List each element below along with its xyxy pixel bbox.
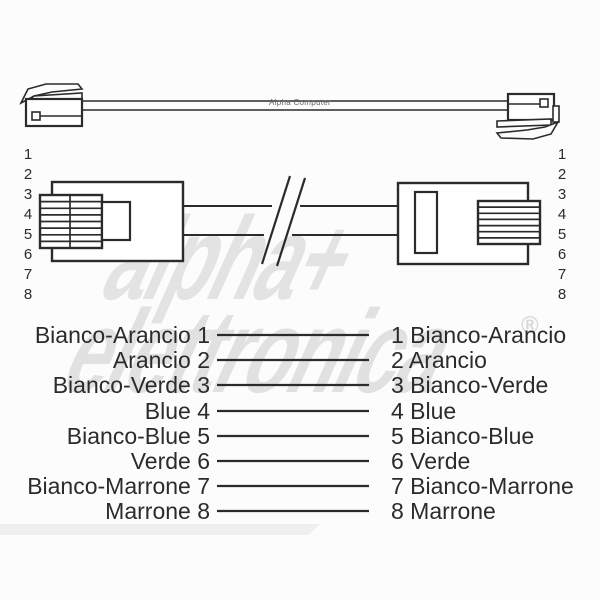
- wire-label-left-8: Marrone 8: [0, 499, 210, 524]
- wire-label-right-3: 3 Bianco-Verde: [391, 373, 600, 398]
- pin-number-left-2: 2: [16, 165, 40, 185]
- pin-number-right-8: 8: [550, 285, 574, 305]
- cable-brand-label: Alpha Computer: [240, 98, 360, 107]
- wire-label-right-8: 8 Marrone: [391, 499, 600, 524]
- pin-number-left-7: 7: [16, 265, 40, 285]
- wire-label-right-6: 6 Verde: [391, 449, 600, 474]
- pin-number-left-4: 4: [16, 205, 40, 225]
- cable-break-icon: [183, 176, 398, 266]
- wire-label-right-4: 4 Blue: [391, 399, 600, 424]
- pin-number-right-2: 2: [550, 165, 574, 185]
- cable-illustration: [21, 84, 559, 139]
- pin-number-right-1: 1: [550, 145, 574, 165]
- wire-label-left-3: Bianco-Verde 3: [0, 373, 210, 398]
- wire-label-right-1: 1 Bianco-Arancio: [391, 323, 600, 348]
- wiring-lines: [217, 335, 369, 511]
- wire-label-left-1: Bianco-Arancio 1: [0, 323, 210, 348]
- pin-number-left-8: 8: [16, 285, 40, 305]
- wire-label-right-7: 7 Bianco-Marrone: [391, 474, 600, 499]
- pin-number-left-5: 5: [16, 225, 40, 245]
- wire-label-left-7: Bianco-Marrone 7: [0, 474, 210, 499]
- rj45-plug-top-left-icon: [21, 84, 82, 126]
- wire-label-left-2: Arancio 2: [0, 348, 210, 373]
- rj45-plug-left-icon: [40, 182, 183, 261]
- pin-number-right-7: 7: [550, 265, 574, 285]
- wire-label-right-5: 5 Bianco-Blue: [391, 424, 600, 449]
- wire-label-left-4: Blue 4: [0, 399, 210, 424]
- pin-number-right-4: 4: [550, 205, 574, 225]
- pin-number-left-3: 3: [16, 185, 40, 205]
- rj45-plug-right-icon: [398, 183, 540, 264]
- pin-number-right-5: 5: [550, 225, 574, 245]
- rj45-pinout-diagram: alpha+ elettronica ®: [0, 0, 600, 600]
- wire-label-right-2: 2 Arancio: [391, 348, 600, 373]
- wire-label-left-5: Bianco-Blue 5: [0, 424, 210, 449]
- wire-label-left-6: Verde 6: [0, 449, 210, 474]
- pin-number-right-6: 6: [550, 245, 574, 265]
- pin-number-left-1: 1: [16, 145, 40, 165]
- pin-number-right-3: 3: [550, 185, 574, 205]
- pin-number-left-6: 6: [16, 245, 40, 265]
